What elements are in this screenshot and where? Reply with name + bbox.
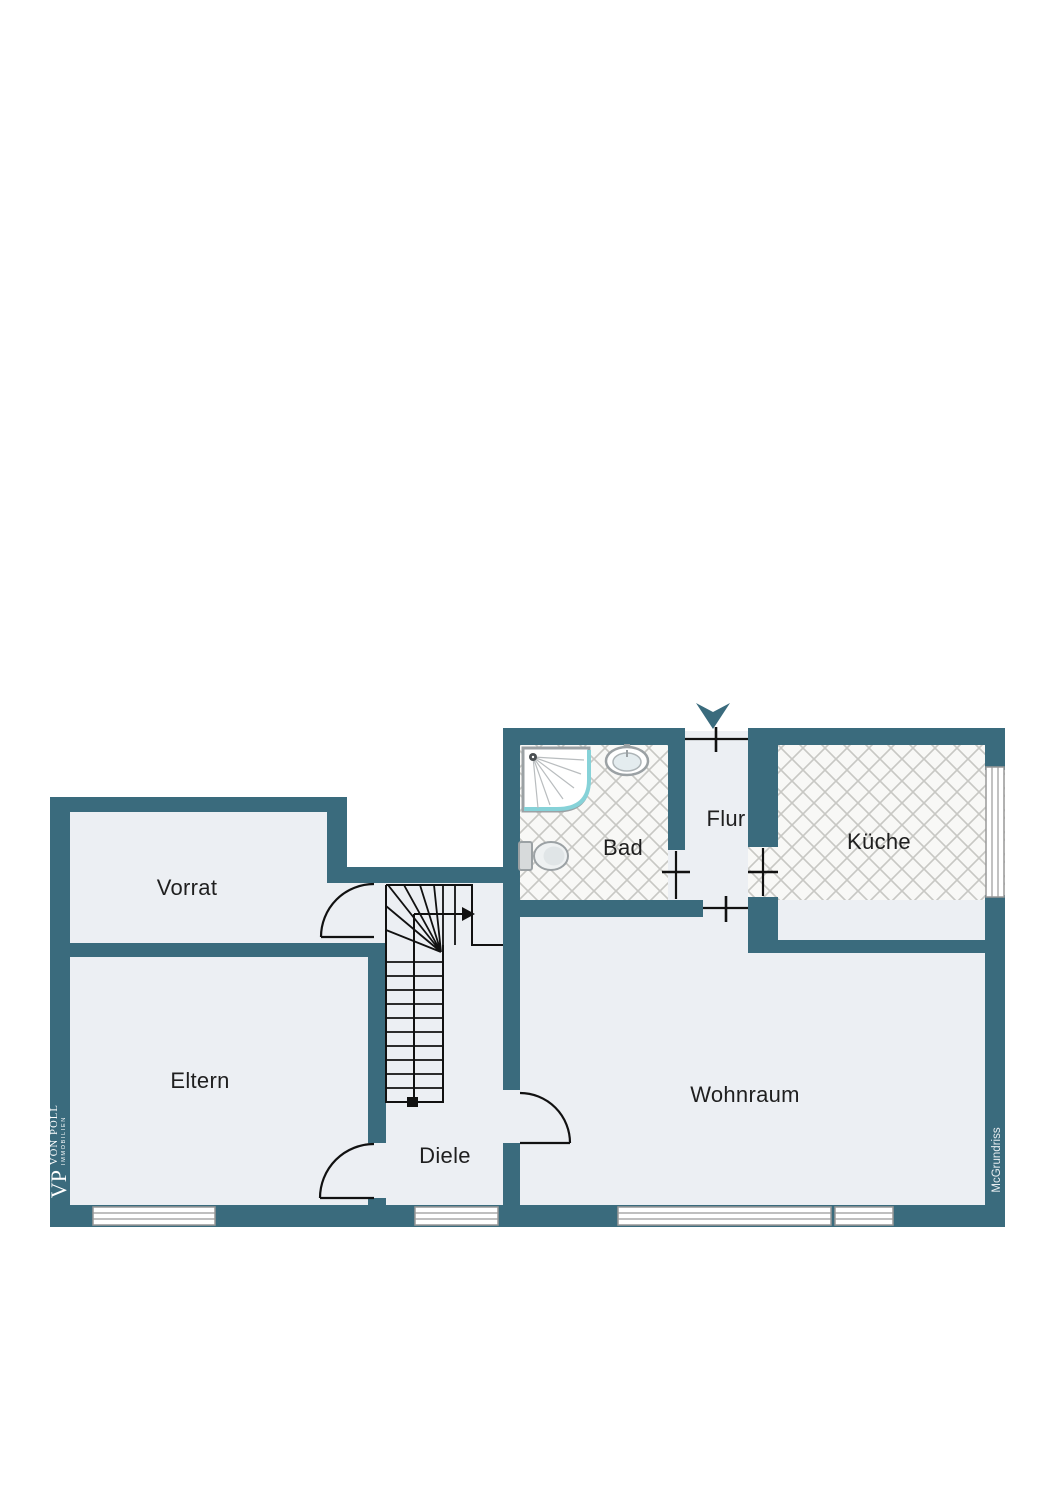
wall-bad-bottom xyxy=(503,900,703,917)
von-poll-logo: VP VON POLL IMMOBILIEN xyxy=(48,1091,70,1211)
stairs-start-marker xyxy=(407,1097,418,1107)
room-label-bad: Bad xyxy=(603,835,643,861)
window-icon xyxy=(415,1207,498,1225)
window-icon xyxy=(618,1207,831,1225)
entrance-arrow-icon xyxy=(696,703,730,729)
shower-icon xyxy=(523,748,589,811)
wall-bad-flur xyxy=(668,745,685,850)
wall-vorrat-top xyxy=(50,797,347,812)
floor-plan-drawing xyxy=(0,0,1060,1500)
floor-plan-canvas: Vorrat Eltern Diele Bad Flur Küche Wohnr… xyxy=(0,0,1060,1500)
window-icon xyxy=(835,1207,893,1225)
wall-vorrat-eltern xyxy=(50,943,380,957)
wall-bad-top xyxy=(503,728,685,745)
logo-name: VON POLL xyxy=(50,1104,61,1165)
wall-flur-kueche-upper xyxy=(748,745,778,847)
room-label-kueche: Küche xyxy=(847,829,911,855)
window-icon xyxy=(986,767,1004,897)
room-label-eltern: Eltern xyxy=(170,1068,229,1094)
mcgrundriss-watermark: McGrundriss xyxy=(989,1115,1005,1205)
room-label-wohnraum: Wohnraum xyxy=(690,1082,800,1108)
wall-stair-top xyxy=(327,867,517,883)
window-icon xyxy=(93,1207,215,1225)
wall-right-outer-upper xyxy=(985,728,1005,770)
room-label-vorrat: Vorrat xyxy=(157,875,218,901)
wall-kueche-top xyxy=(748,728,1005,745)
logo-subtitle: IMMOBILIEN xyxy=(62,1104,68,1165)
room-label-flur: Flur xyxy=(706,806,745,832)
toilet-icon xyxy=(519,842,568,870)
room-label-diele: Diele xyxy=(419,1143,471,1169)
wall-eltern-right xyxy=(368,943,386,1143)
wall-kueche-bottom xyxy=(748,940,1005,953)
logo-vp-monogram: VP xyxy=(48,1170,70,1198)
